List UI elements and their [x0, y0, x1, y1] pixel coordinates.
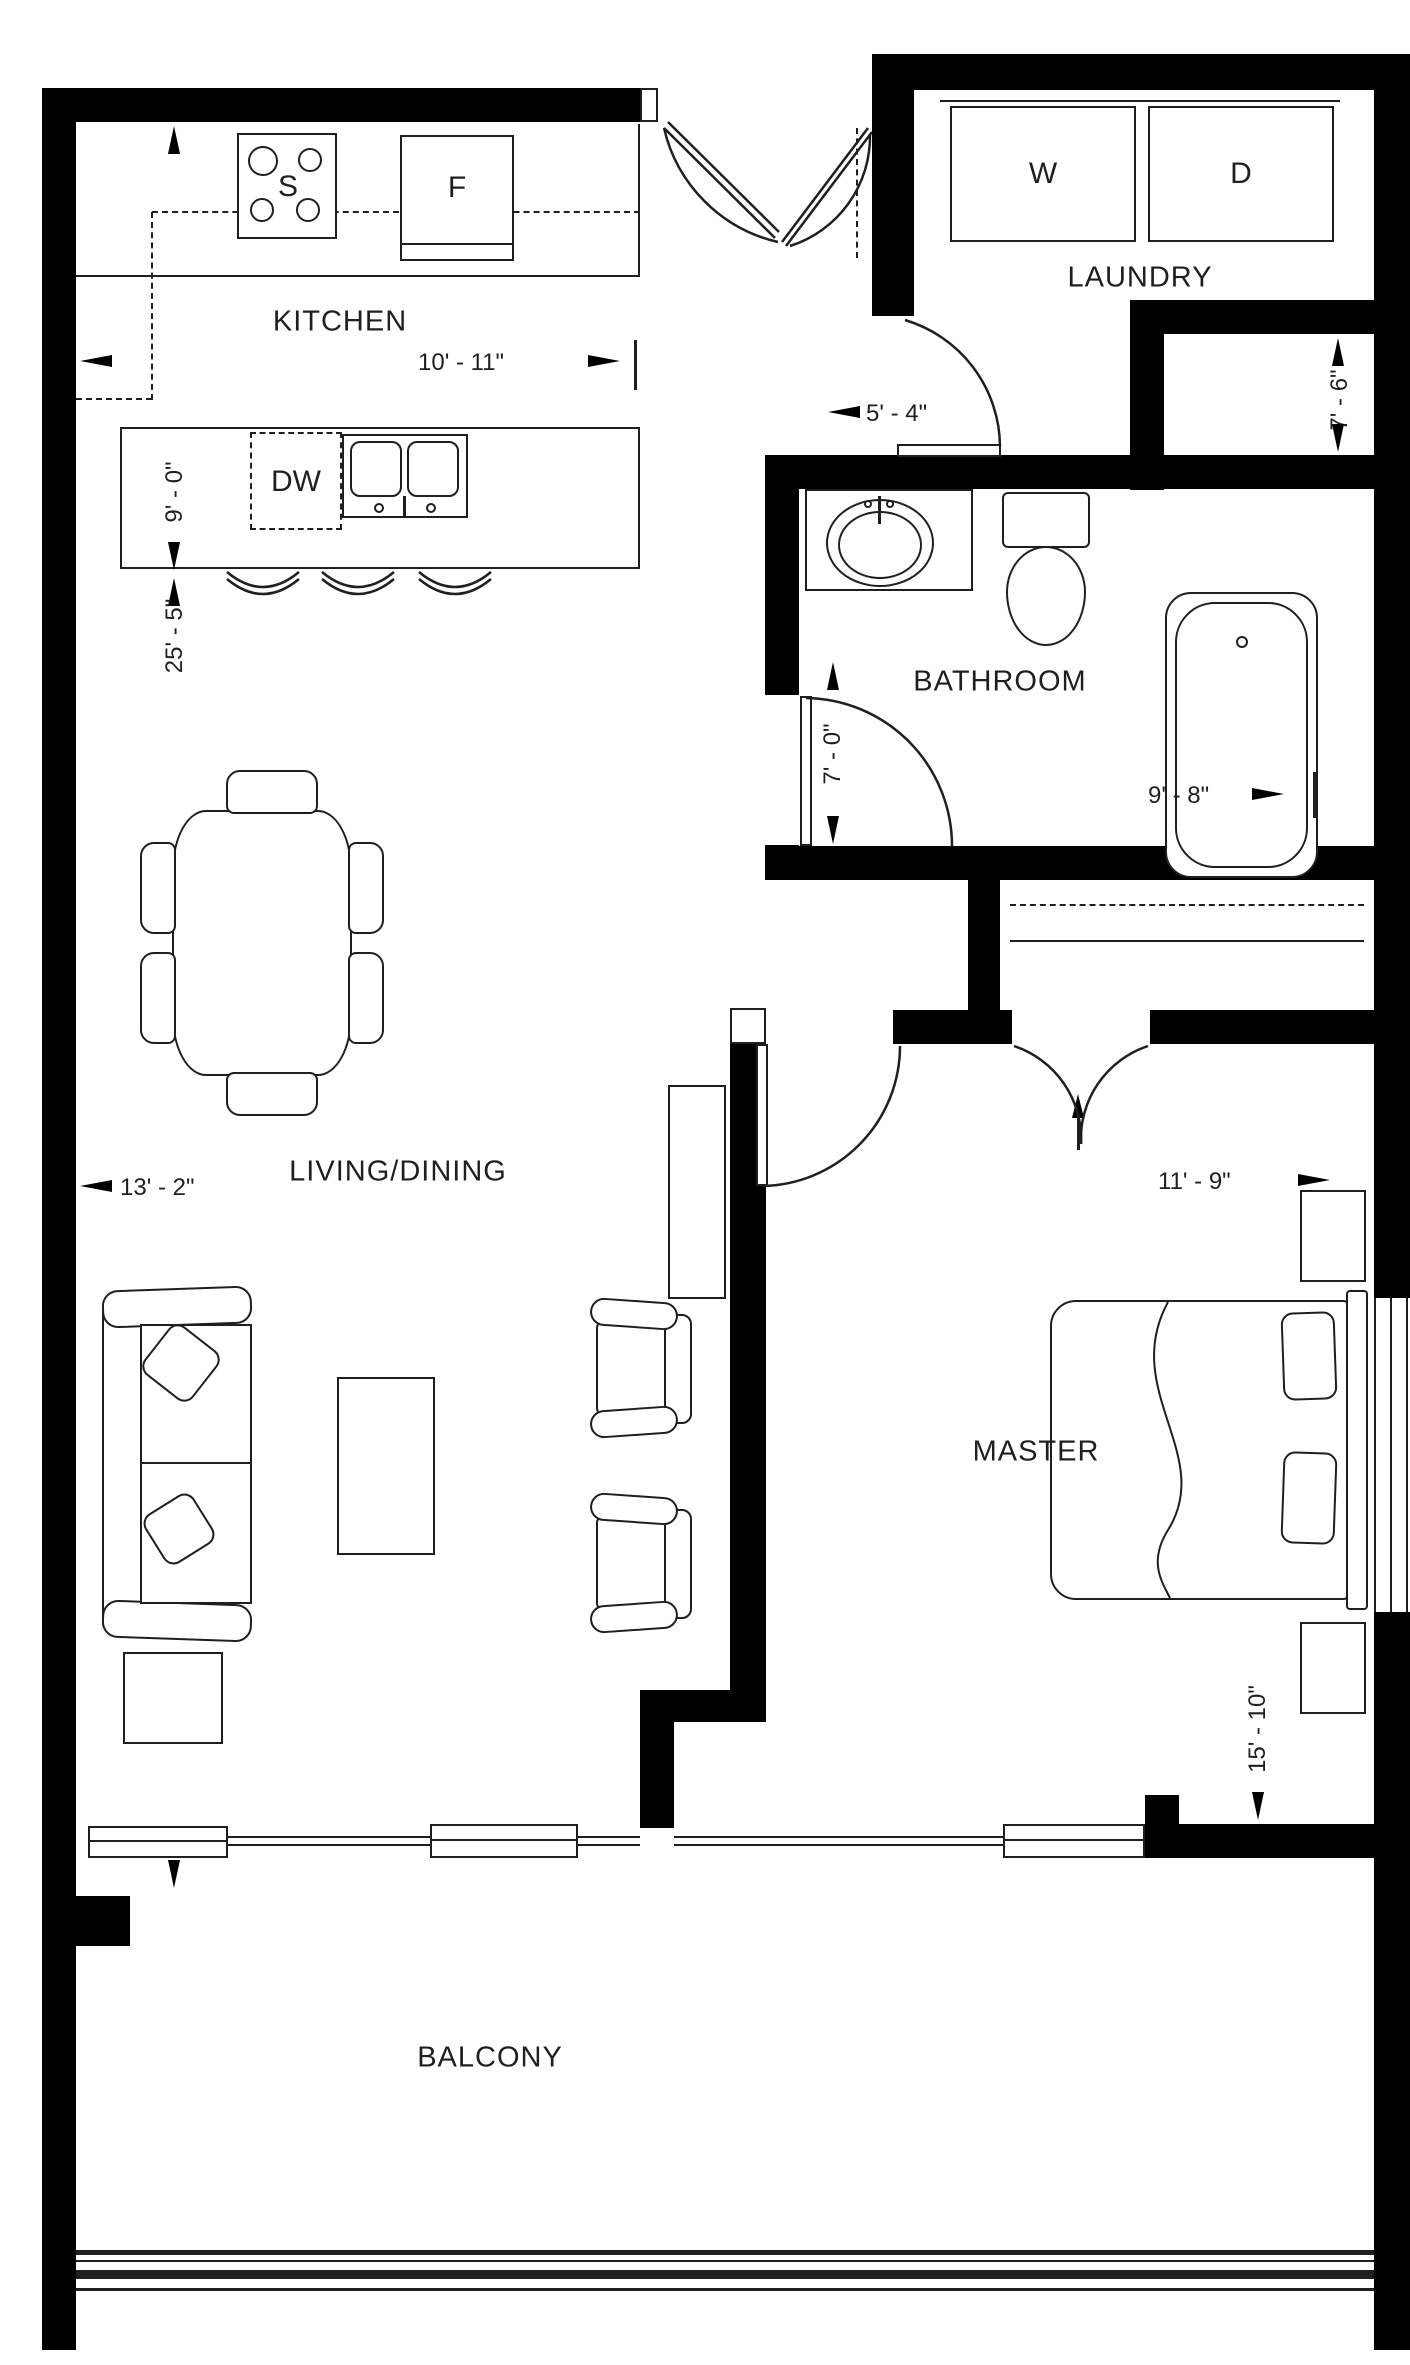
- floor-plan: S F KITCHEN DW W D LAUNDRY BATHROOM LIVI…: [0, 0, 1410, 2365]
- door-swing-arcs: [0, 0, 1410, 2365]
